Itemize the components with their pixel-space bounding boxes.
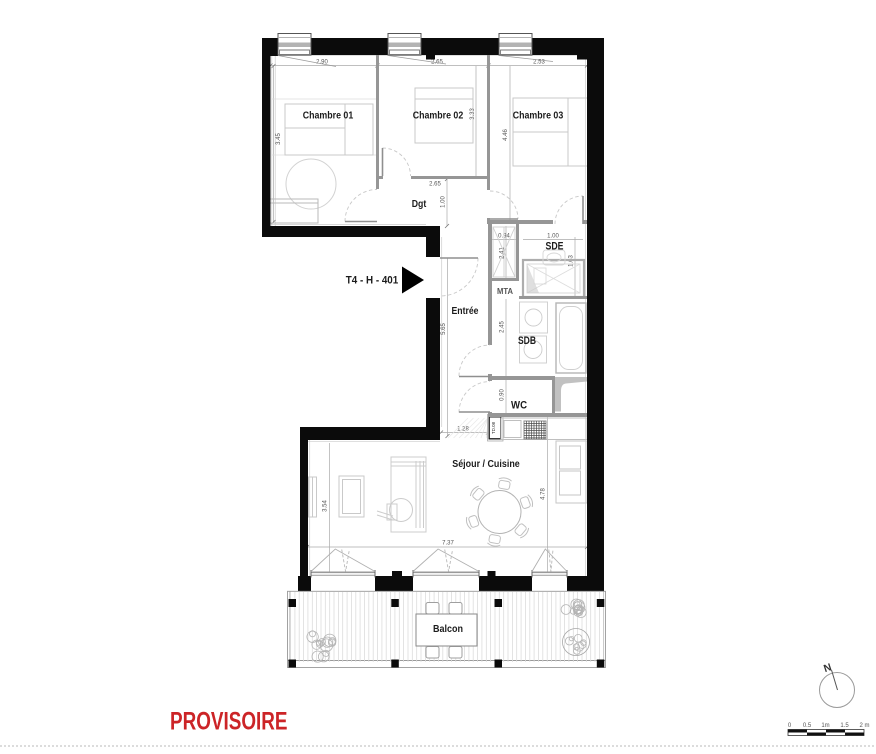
svg-text:1m: 1m xyxy=(821,723,829,729)
svg-text:2 m: 2 m xyxy=(859,723,869,729)
svg-text:Dgt: Dgt xyxy=(412,199,427,210)
svg-text:MTA: MTA xyxy=(497,286,513,296)
svg-text:0: 0 xyxy=(788,723,792,729)
svg-text:3.45: 3.45 xyxy=(276,133,282,145)
svg-text:PROVISOIRE: PROVISOIRE xyxy=(170,708,288,736)
svg-text:Entrée: Entrée xyxy=(452,306,479,317)
svg-text:0.90: 0.90 xyxy=(500,389,506,401)
svg-text:2.45: 2.45 xyxy=(500,321,506,333)
svg-text:Chambre 01: Chambre 01 xyxy=(303,110,354,121)
svg-text:0.5: 0.5 xyxy=(803,723,812,729)
svg-text:2.65: 2.65 xyxy=(429,182,441,188)
svg-text:Chambre 03: Chambre 03 xyxy=(513,110,564,121)
svg-text:1.00: 1.00 xyxy=(547,234,559,240)
svg-text:Chambre 02: Chambre 02 xyxy=(413,110,464,121)
svg-text:3.54: 3.54 xyxy=(323,500,329,512)
svg-text:1.00: 1.00 xyxy=(441,196,447,208)
svg-text:7.37: 7.37 xyxy=(442,541,454,547)
svg-text:5.65: 5.65 xyxy=(441,323,447,335)
svg-text:WC: WC xyxy=(511,400,527,412)
svg-text:Balcon: Balcon xyxy=(433,624,463,635)
svg-text:N: N xyxy=(822,661,833,675)
svg-text:1.5: 1.5 xyxy=(840,723,849,729)
svg-text:SDE: SDE xyxy=(546,240,564,252)
svg-text:4.46: 4.46 xyxy=(503,129,509,141)
svg-text:T4 - H - 401: T4 - H - 401 xyxy=(346,275,399,287)
svg-text:Séjour / Cuisine: Séjour / Cuisine xyxy=(452,459,520,470)
svg-text:TD.08: TD.08 xyxy=(491,421,496,434)
svg-text:4.78: 4.78 xyxy=(541,488,547,500)
svg-text:SDB: SDB xyxy=(518,335,536,347)
